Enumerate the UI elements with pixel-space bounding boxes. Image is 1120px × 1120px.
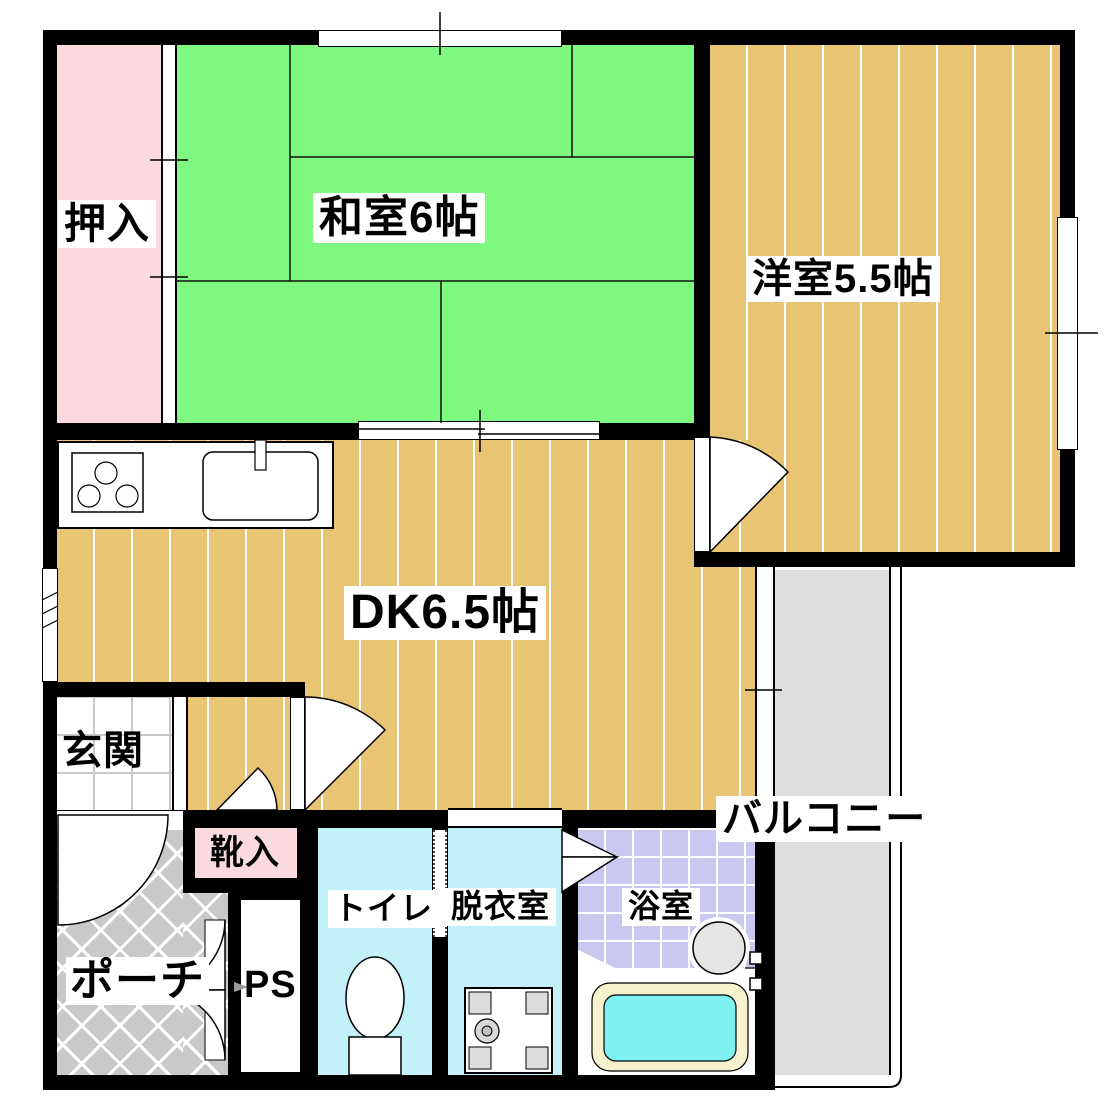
wall-youshitsu-bottom xyxy=(694,552,1075,567)
genkan-doorway xyxy=(172,697,188,810)
label-washitsu: 和室6帖 xyxy=(313,193,485,243)
balcony-sliding-door xyxy=(755,567,775,813)
youshitsu-door-leaf xyxy=(694,437,710,552)
dk-louver-window xyxy=(42,568,58,682)
wall-dk-genkan xyxy=(43,682,305,697)
label-balcony: バルコニー xyxy=(716,796,932,842)
youshitsu-window xyxy=(1057,217,1078,450)
room-toilet xyxy=(318,828,432,1075)
wall-datsuishitsu-bath xyxy=(562,828,578,1075)
fusuma-sliding-door xyxy=(161,45,177,423)
label-ps: PS xyxy=(244,966,297,1006)
dk-hall-door-leaf xyxy=(290,697,305,810)
floor-plan: 押入 和室6帖 洋室5.5帖 DK6.5帖 玄関 靴入 トイレ 脱衣室 浴室 バ… xyxy=(0,0,1120,1120)
label-toilet: トイレ xyxy=(328,890,439,928)
label-oshiire: 押入 xyxy=(58,200,156,248)
label-genkan: 玄関 xyxy=(62,730,144,772)
datsuishitsu-opening xyxy=(448,808,562,828)
wall-left xyxy=(43,30,57,1090)
washitsu-window xyxy=(318,30,562,47)
label-youshitsu: 洋室5.5帖 xyxy=(746,256,940,302)
porch-area-1 xyxy=(57,830,183,1075)
washitsu-sliding-door xyxy=(358,421,600,440)
label-kutsuire: 靴入 xyxy=(210,836,280,872)
wall-washitsu-youshitsu xyxy=(694,30,710,437)
wall-bottom xyxy=(43,1075,775,1090)
wall-bath-right xyxy=(755,813,775,1090)
label-dk: DK6.5帖 xyxy=(344,586,546,640)
genkan-step xyxy=(57,810,183,830)
room-datsuishitsu xyxy=(448,828,562,1075)
label-datsuishitsu: 脱衣室 xyxy=(445,888,556,926)
label-porch: ポーチ xyxy=(66,957,209,1005)
label-yokushitsu: 浴室 xyxy=(622,888,700,926)
